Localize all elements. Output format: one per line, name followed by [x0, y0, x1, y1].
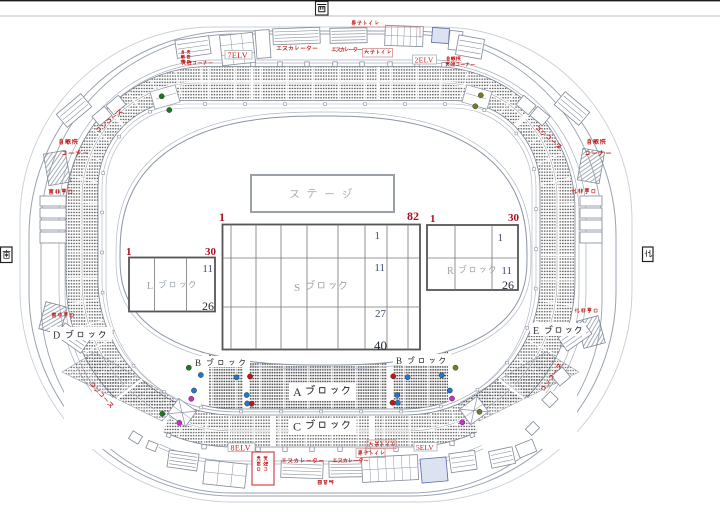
- svg-text:11: 11: [374, 262, 385, 274]
- svg-text:1: 1: [219, 210, 225, 224]
- svg-text:D: D: [53, 331, 60, 342]
- svg-text:30: 30: [205, 246, 217, 258]
- svg-text:7ELV: 7ELV: [228, 51, 248, 60]
- svg-text:26: 26: [202, 299, 214, 313]
- svg-text:40: 40: [374, 338, 387, 353]
- svg-text:A: A: [293, 385, 302, 399]
- svg-text:1: 1: [498, 232, 504, 244]
- svg-text:L: L: [147, 281, 153, 292]
- svg-text:8ELV: 8ELV: [231, 443, 251, 452]
- svg-text:1: 1: [430, 213, 436, 225]
- svg-text:2ELV: 2ELV: [415, 56, 434, 65]
- svg-text:B: B: [195, 358, 201, 368]
- svg-text:26: 26: [502, 278, 514, 292]
- svg-text:1: 1: [375, 230, 381, 242]
- svg-text:B: B: [396, 356, 402, 366]
- svg-text:R: R: [447, 266, 454, 277]
- svg-text:27: 27: [375, 308, 387, 320]
- svg-text:5ELV: 5ELV: [416, 443, 434, 452]
- svg-text:E: E: [533, 326, 539, 337]
- svg-text:82: 82: [407, 209, 419, 223]
- svg-text:11: 11: [501, 265, 512, 277]
- svg-text:30: 30: [508, 212, 520, 224]
- svg-text:11: 11: [202, 263, 213, 275]
- svg-text:S: S: [294, 282, 300, 294]
- svg-text:C: C: [293, 420, 301, 434]
- svg-text:1: 1: [126, 246, 132, 258]
